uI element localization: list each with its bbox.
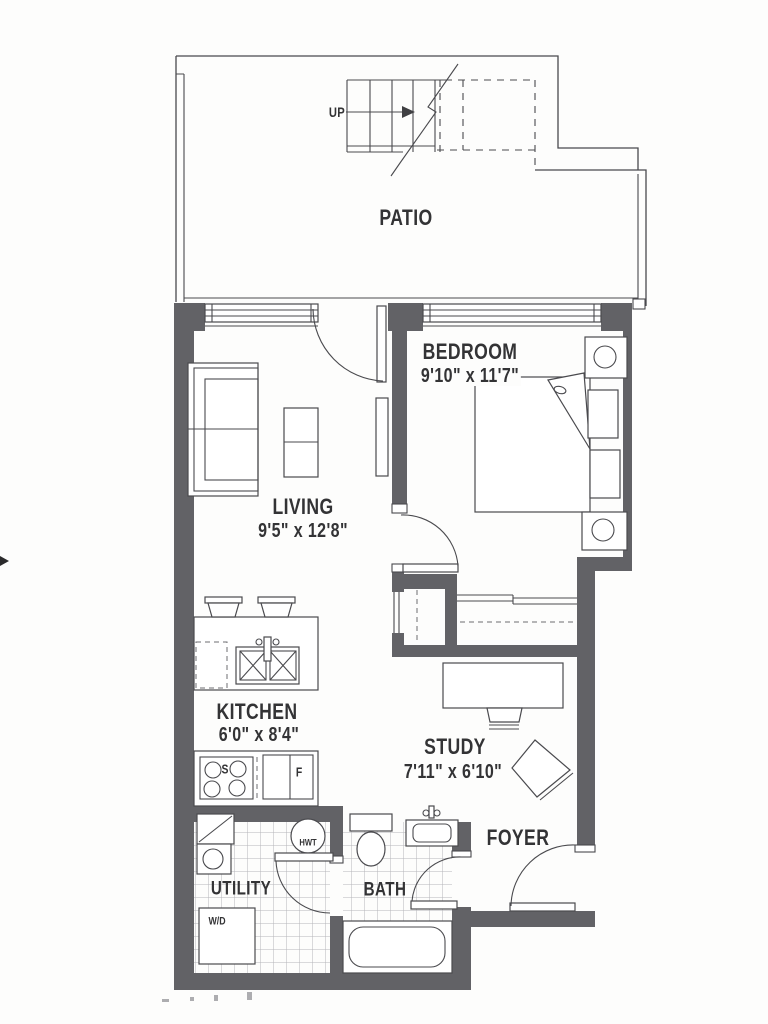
foyer-label: FOYER — [487, 827, 550, 849]
bedroom-label: BEDROOM — [423, 341, 518, 363]
stair-break-line — [391, 64, 458, 176]
patio-door — [313, 306, 386, 382]
entry-door-swing-arc — [511, 845, 575, 906]
bed — [475, 373, 590, 512]
bedroom-door — [401, 515, 458, 572]
up-label: UP — [329, 105, 345, 119]
patio-label: PATIO — [379, 207, 432, 229]
sofa — [188, 363, 258, 496]
bath-label: BATH — [364, 881, 407, 900]
utility-label: UTILITY — [211, 880, 271, 899]
bar-stool — [258, 597, 295, 617]
fridge-label: F — [296, 766, 302, 779]
washer-dryer-label: W/D — [208, 917, 227, 928]
kitchen-dimensions: 6'0" x 8'4" — [217, 725, 301, 745]
nightstand — [585, 337, 627, 378]
floor-plan-drawing — [0, 0, 768, 1024]
desk — [443, 663, 563, 708]
bathtub — [343, 921, 452, 973]
patio-outline — [176, 56, 646, 309]
study-label: STUDY — [424, 736, 486, 758]
study-dimensions: 7'11" x 6'10" — [402, 762, 503, 782]
bedroom-closet — [457, 595, 577, 622]
entry-door — [510, 845, 575, 911]
entry-door-leaf — [510, 903, 575, 911]
living-window — [205, 304, 318, 326]
lounge-chair — [512, 740, 573, 800]
floor-plan: PATIO UP BEDROOM 9'10" x 11'7" LIVING 9'… — [0, 0, 768, 1024]
cutoff-text-fragment — [162, 992, 252, 1002]
laundry-tub — [197, 814, 234, 874]
console-table — [376, 398, 388, 476]
desk-chair — [487, 708, 522, 729]
bedroom-dimensions: 9'10" x 11'7" — [419, 366, 520, 386]
faucet — [429, 806, 434, 818]
nightstand — [582, 512, 627, 550]
living-dimensions: 9'5" x 12'8" — [256, 521, 349, 541]
bath-door-leaf — [411, 901, 457, 909]
stove-label: S — [222, 763, 229, 776]
utility-door-leaf — [275, 853, 333, 861]
bedroom-door-swing-arc — [401, 515, 458, 566]
bedroom-door-leaf — [403, 564, 458, 572]
patio-door-swing-arc — [313, 309, 383, 381]
bath-sink — [406, 806, 458, 846]
staircase — [346, 64, 535, 176]
bedroom-window — [423, 304, 601, 326]
headboard-cushion — [588, 390, 618, 438]
coffee-table — [284, 408, 318, 477]
living-label: LIVING — [272, 496, 333, 518]
patio-door-leaf — [377, 306, 386, 382]
kitchen-island — [194, 617, 318, 690]
bar-stool — [205, 597, 242, 617]
faucet — [264, 637, 271, 661]
scan-artifact — [0, 556, 9, 566]
kitchen-label: KITCHEN — [216, 701, 297, 723]
headboard-cushion — [590, 450, 620, 498]
hot-water-tank-label: HWT — [299, 838, 316, 848]
